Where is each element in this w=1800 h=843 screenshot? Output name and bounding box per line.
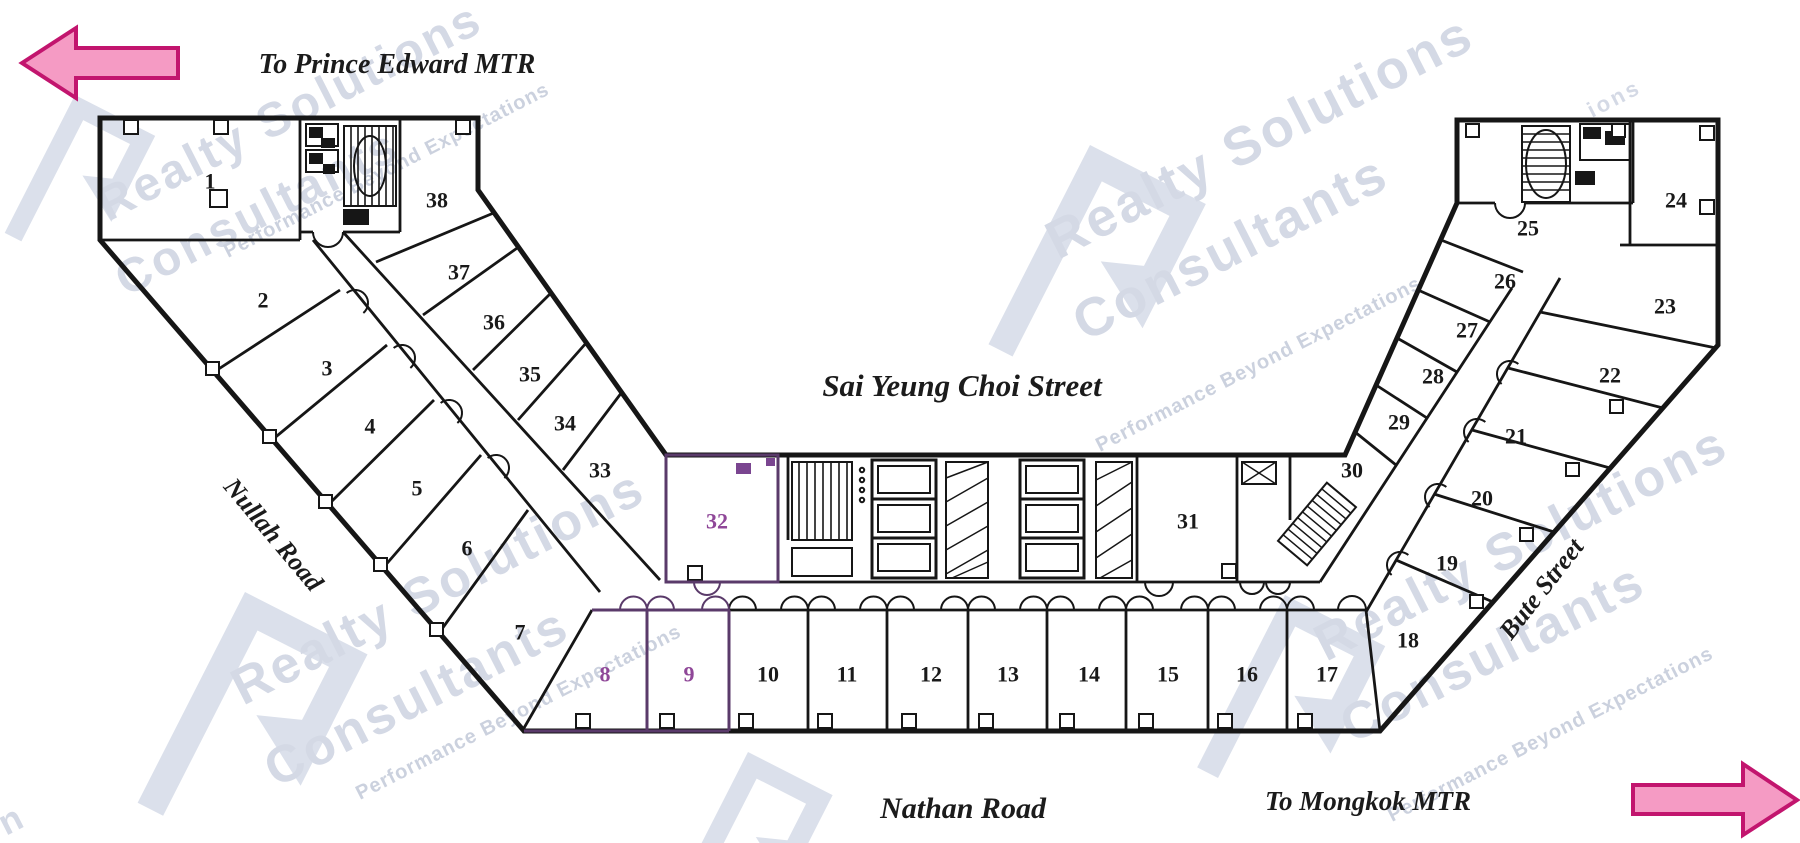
unit-label-9: 9 xyxy=(684,662,695,687)
wall-column-square xyxy=(902,714,916,728)
door-arc xyxy=(488,450,515,478)
street-label-nathan-road: Nathan Road xyxy=(879,792,1047,825)
unit-label-4: 4 xyxy=(365,414,376,439)
unit-label-6: 6 xyxy=(462,536,473,561)
unit-label-25: 25 xyxy=(1517,216,1539,241)
unit-label-33: 33 xyxy=(589,458,611,483)
street-label-nullah-road: Nullah Road xyxy=(217,472,329,598)
unit-label-30: 30 xyxy=(1341,458,1363,483)
unit-32-marker-small xyxy=(766,458,775,466)
wall-column-square xyxy=(1218,714,1232,728)
wall-column-square xyxy=(1470,595,1483,608)
unit-label-8: 8 xyxy=(600,662,611,687)
floor-plan-image: Realty SolutionsConsultantsPerformance B… xyxy=(0,0,1800,843)
service-lift-x xyxy=(1242,462,1276,484)
watermark-tile xyxy=(674,752,833,843)
unit-label-16: 16 xyxy=(1236,662,1258,687)
unit-label-11: 11 xyxy=(837,662,858,687)
wall-column-square xyxy=(124,120,138,134)
stair-lift-cores xyxy=(306,124,1630,578)
unit-label-17: 17 xyxy=(1316,662,1338,687)
unit-label-15: 15 xyxy=(1157,662,1179,687)
unit-label-35: 35 xyxy=(519,362,541,387)
unit-label-29: 29 xyxy=(1388,410,1410,435)
watermark-tile: Realty SolutionsConsultantsPerformance B… xyxy=(1197,414,1737,826)
realty-logo-icon xyxy=(674,752,833,843)
wall-column-square xyxy=(206,362,219,375)
shaft-hatch-b xyxy=(1096,462,1132,578)
unit-label-22: 22 xyxy=(1599,363,1621,388)
wall-column-square xyxy=(456,120,470,134)
unit-label-28: 28 xyxy=(1422,364,1444,389)
left-arrow-label: To Prince Edward MTR xyxy=(259,49,536,80)
unit-label-12: 12 xyxy=(920,662,942,687)
wall-column-square xyxy=(1298,714,1312,728)
wall-column-square xyxy=(319,495,332,508)
wall-column-square xyxy=(263,430,276,443)
wall-column-square xyxy=(688,566,702,580)
watermark-fragment: n xyxy=(0,795,32,843)
wall-column-square xyxy=(1610,400,1623,413)
wall-column-square xyxy=(1466,124,1479,137)
wall-column-square xyxy=(979,714,993,728)
left-arrow-icon xyxy=(22,28,178,98)
right-arrow-label: To Mongkok MTR xyxy=(1265,786,1471,816)
unit-label-27: 27 xyxy=(1456,318,1478,343)
unit-label-14: 14 xyxy=(1078,662,1100,687)
unit-label-18: 18 xyxy=(1397,628,1419,653)
unit-label-1: 1 xyxy=(205,169,216,194)
lift-bank-b xyxy=(1020,460,1084,578)
unit-label-34: 34 xyxy=(554,411,576,436)
unit-label-23: 23 xyxy=(1654,294,1676,319)
wall-column-square xyxy=(1612,124,1625,137)
wall-column-square xyxy=(214,120,228,134)
wall-column-square xyxy=(1222,564,1236,578)
central-core xyxy=(792,460,1356,578)
unit-label-37: 37 xyxy=(448,260,470,285)
wall-column-square xyxy=(374,558,387,571)
door-arc xyxy=(441,395,468,423)
unit-label-2: 2 xyxy=(258,288,269,313)
watermark-fragment: ions xyxy=(1583,74,1645,122)
wall-column-square xyxy=(1520,528,1533,541)
wall-column-square xyxy=(660,714,674,728)
lift-bank-a xyxy=(872,460,936,578)
wall-column-square xyxy=(1060,714,1074,728)
unit-label-19: 19 xyxy=(1436,551,1458,576)
street-label-sai-yeung-choi-street: Sai Yeung Choi Street xyxy=(822,368,1103,403)
unit-label-24: 24 xyxy=(1665,188,1687,213)
floor-plan-page: Realty SolutionsConsultantsPerformance B… xyxy=(0,0,1800,843)
unit-label-26: 26 xyxy=(1494,269,1516,294)
unit-32-marker xyxy=(736,463,751,474)
unit-label-7: 7 xyxy=(515,620,526,645)
purple-door-arcs xyxy=(620,582,729,610)
wall-column-square xyxy=(1700,200,1714,214)
unit-label-13: 13 xyxy=(997,662,1019,687)
wall-column-square xyxy=(818,714,832,728)
unit-label-31: 31 xyxy=(1177,509,1199,534)
unit-label-32: 32 xyxy=(706,509,728,534)
wall-column-square xyxy=(430,623,443,636)
shaft-hatch-a xyxy=(946,462,988,578)
wall-column-square xyxy=(1139,714,1153,728)
unit-label-36: 36 xyxy=(483,310,505,335)
unit-label-21: 21 xyxy=(1505,424,1527,449)
unit-label-20: 20 xyxy=(1471,486,1493,511)
wall-column-square xyxy=(576,714,590,728)
unit-label-38: 38 xyxy=(426,188,448,213)
wall-column-square xyxy=(739,714,753,728)
right-arrow-icon xyxy=(1633,764,1797,835)
wall-column-square xyxy=(1700,126,1714,140)
unit-label-5: 5 xyxy=(412,476,423,501)
unit-label-3: 3 xyxy=(322,356,333,381)
unit-label-10: 10 xyxy=(757,662,779,687)
wall-column-square xyxy=(1566,463,1579,476)
